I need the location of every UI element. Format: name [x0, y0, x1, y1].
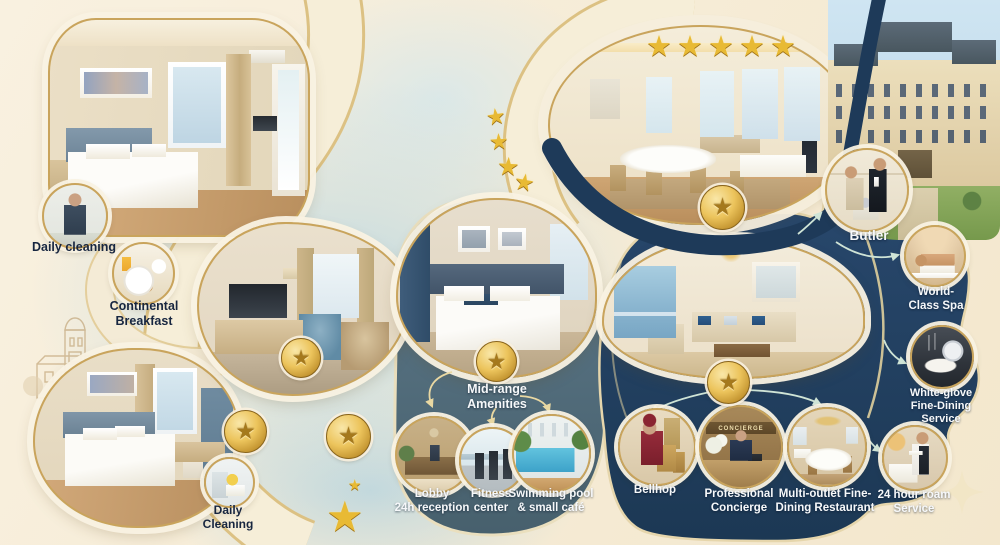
- budget-room-photo-bottom: [33, 348, 240, 528]
- bellhop-label: Bellhop: [613, 484, 697, 498]
- daily-cleaning-top-label: Daily cleaning: [16, 240, 132, 255]
- star-medallion-icon: [224, 410, 267, 453]
- five-star-rating: [646, 33, 796, 62]
- star-icon: [739, 33, 765, 62]
- bellhop-photo: [618, 408, 696, 486]
- spa-photo: [904, 225, 966, 287]
- star-icon: [488, 130, 509, 153]
- arrow-icon: [836, 242, 898, 257]
- arrow-icon: [798, 213, 821, 234]
- spa-label: World- Class Spa: [894, 286, 978, 313]
- star-icon: [326, 496, 364, 538]
- star-medallion-icon: [326, 414, 371, 459]
- butler-photo: [825, 148, 909, 232]
- continental-breakfast-label: Continental Breakfast: [90, 299, 198, 329]
- arrow-icon: [884, 340, 905, 363]
- midrange-amenities-label: Mid-range Amenities: [435, 382, 559, 412]
- luxury-suite-photo: [602, 238, 865, 379]
- restaurant-label: Multi-outlet Fine- Dining Restaurant: [765, 488, 885, 515]
- star-icon: [348, 478, 361, 493]
- star-medallion-icon: [700, 185, 745, 230]
- room-service-photo: [882, 425, 948, 491]
- star-medallion-icon: [476, 341, 517, 382]
- arrow-icon: [746, 390, 820, 404]
- star-medallion-icon: [281, 338, 321, 378]
- pool-label: Swimming pool & small café: [503, 488, 599, 515]
- cleaning-supplies-photo: [204, 457, 255, 508]
- white-glove-label: White-glove Fine-Dining Service: [895, 387, 987, 426]
- star-medallion-icon: [707, 361, 750, 404]
- hotel-tier-infographic: CONCIERGE Daily cleaning Continental Bre…: [0, 0, 1000, 545]
- white-glove-dining-photo: [910, 325, 974, 389]
- pool-photo: [512, 414, 591, 493]
- star-icon: [485, 105, 508, 130]
- butler-label: Butler: [827, 228, 911, 244]
- concierge-sign: CONCIERGE: [701, 426, 781, 432]
- star-icon: [512, 169, 536, 195]
- concierge-photo: CONCIERGE: [699, 405, 783, 489]
- star-icon: [708, 33, 734, 62]
- star-icon: [770, 33, 796, 62]
- star-icon: [646, 33, 672, 62]
- daily-cleaning-bottom-label: Daily Cleaning: [186, 503, 270, 531]
- star-icon: [677, 33, 703, 62]
- fine-dining-restaurant-photo: [787, 407, 867, 487]
